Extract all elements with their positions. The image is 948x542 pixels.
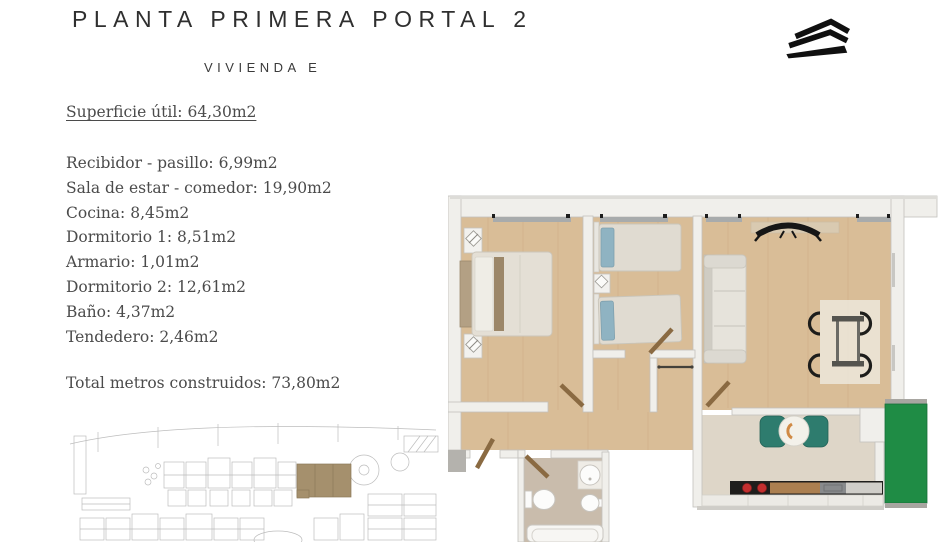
exterior-wall-corner <box>448 450 466 472</box>
highlighted-unit <box>297 464 351 498</box>
room-area-list: Recibidor - pasillo: 6,99m2 Sala de esta… <box>66 151 332 349</box>
kitchen-table <box>779 416 809 446</box>
toilet <box>525 490 555 510</box>
floor-plan-render <box>448 195 948 542</box>
room-area-item: Recibidor - pasillo: 6,99m2 <box>66 151 332 176</box>
room-area-item: Dormitorio 1: 8,51m2 <box>66 225 332 250</box>
plan-sheet: { "header": { "title": "PLANTA PRIMERA P… <box>0 0 948 542</box>
kitchen-cabinets <box>702 495 883 506</box>
tendedero-area <box>885 399 927 508</box>
page-subtitle: VIVIENDA E <box>204 60 321 75</box>
kitchen-counter <box>730 481 883 495</box>
sofa <box>704 255 746 363</box>
room-area-item: Cocina: 8,45m2 <box>66 201 332 226</box>
site-plan <box>68 418 440 542</box>
bathtub <box>527 525 603 542</box>
kitchen-facade-edge <box>697 506 884 510</box>
facade-edge <box>450 196 937 199</box>
stacked-building-icon <box>786 22 848 59</box>
room-area-item: Sala de estar - comedor: 19,90m2 <box>66 176 332 201</box>
total-built-area: Total metros construidos: 73,80m2 <box>66 374 340 392</box>
room-area-item: Dormitorio 2: 12,61m2 <box>66 275 332 300</box>
room-area-item: Tendedero: 2,46m2 <box>66 325 332 350</box>
sink <box>580 465 600 485</box>
dining-rug <box>820 300 880 384</box>
room-area-item: Baño: 4,37m2 <box>66 300 332 325</box>
page-title: PLANTA PRIMERA PORTAL 2 <box>72 6 533 33</box>
room-area-item: Armario: 1,01m2 <box>66 250 332 275</box>
superficie-util: Superficie útil: 64,30m2 <box>66 103 256 121</box>
builder-logo <box>780 8 872 72</box>
